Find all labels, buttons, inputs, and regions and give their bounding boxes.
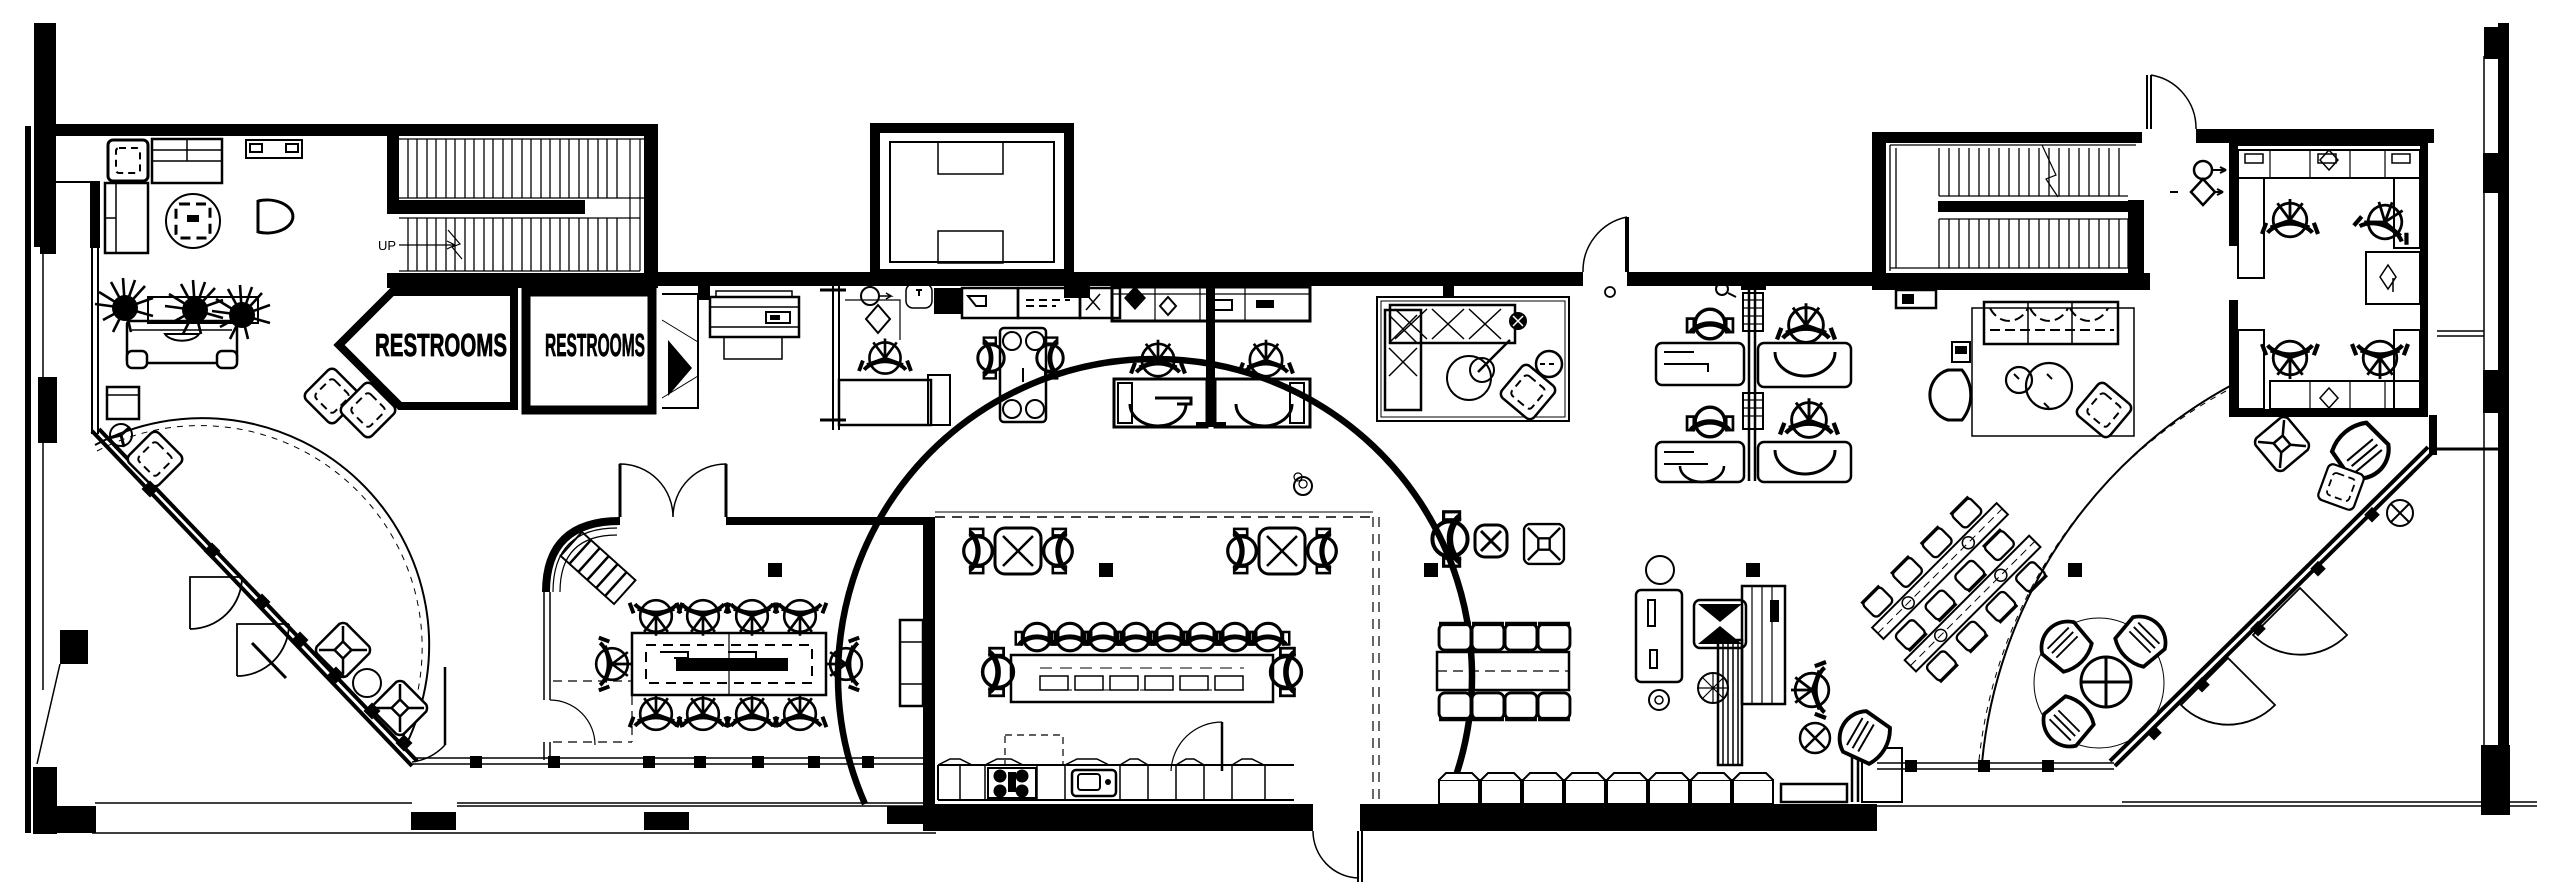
svg-text:UP: UP [378, 238, 396, 253]
svg-text:RESTROOMS: RESTROOMS [375, 327, 507, 363]
svg-text:RESTROOMS: RESTROOMS [545, 327, 645, 363]
